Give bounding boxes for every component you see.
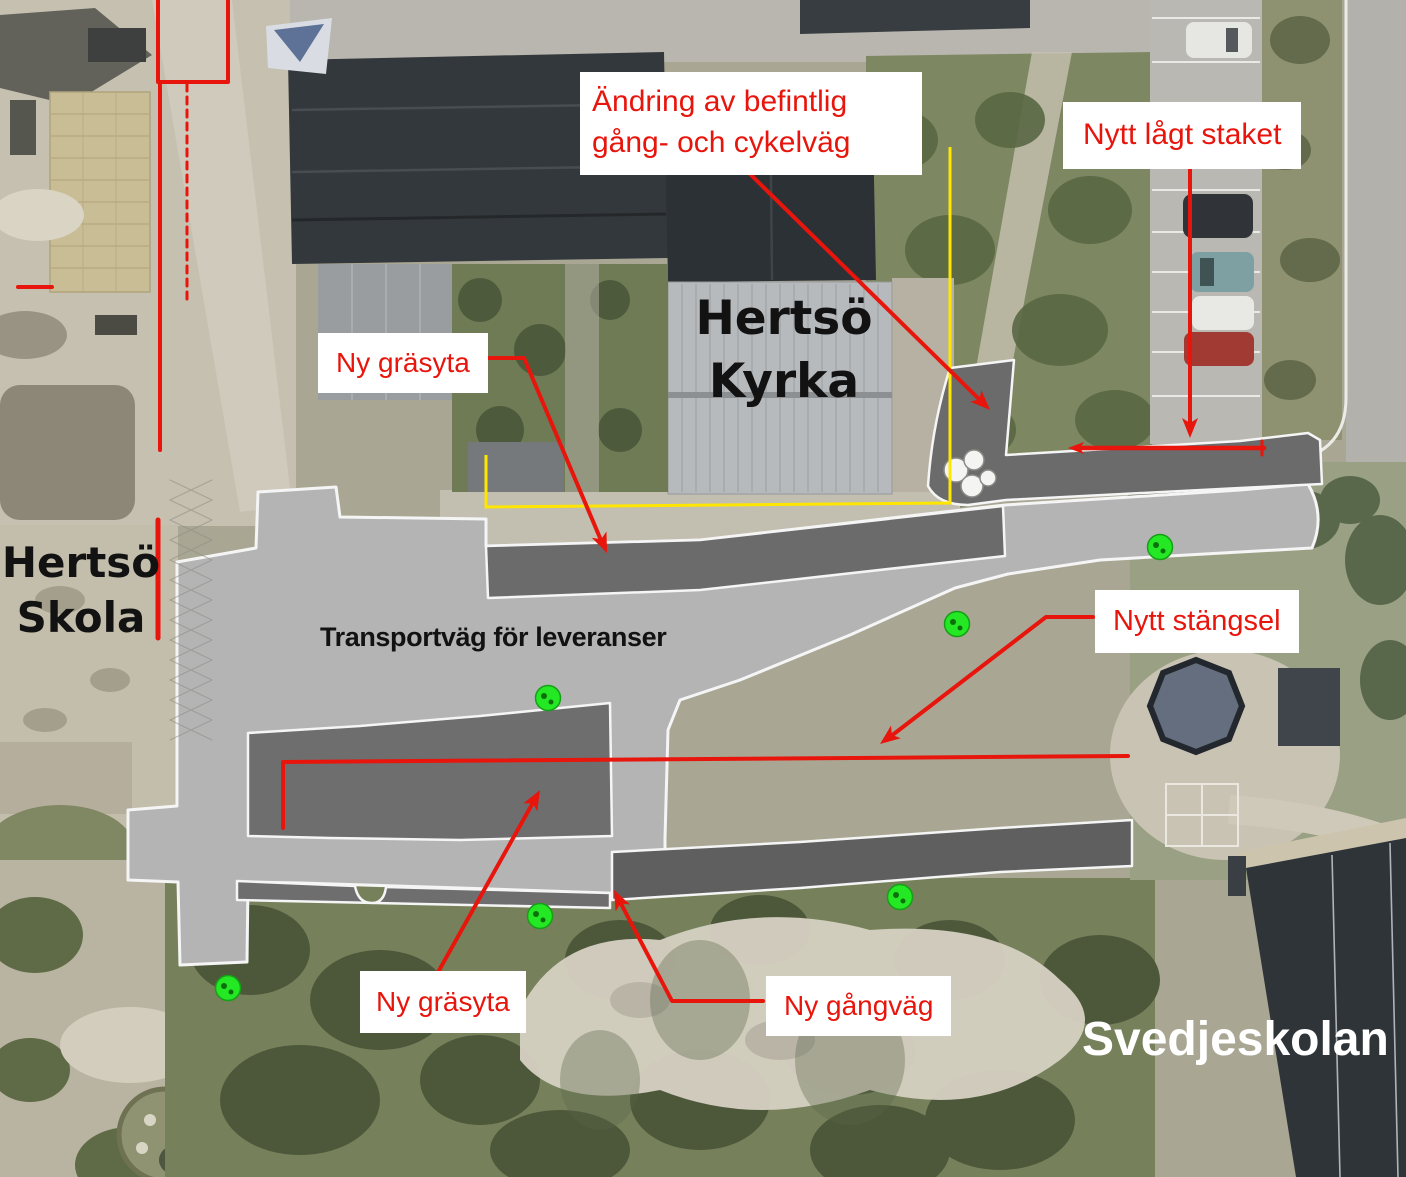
annotation-nytt-lagt-staket: Nytt lågt staket <box>1063 102 1301 169</box>
aerial-photo-canvas <box>0 0 1406 1177</box>
annotation-andring-cykelvag: Ändring av befintlig gång- och cykelväg <box>580 72 922 175</box>
excavator <box>95 315 137 335</box>
place-label-transportvag: Transportväg för leveranser <box>320 622 666 653</box>
top-building-roof <box>800 0 1030 34</box>
construction-building-roof <box>50 92 150 292</box>
car-teal <box>1190 252 1254 292</box>
annotation-ny-gangvag: Ny gångväg <box>766 976 951 1036</box>
octagon-pool <box>1150 660 1242 752</box>
place-label-hertso-skola: Hertsö Skola <box>0 536 166 645</box>
annotation-ny-grasyta-lower: Ny gräsyta <box>360 971 526 1033</box>
annotation-nytt-stangsel: Nytt stängsel <box>1095 590 1299 653</box>
car-red <box>1184 332 1254 366</box>
site-plan-map: Ändring av befintlig gång- och cykelväg … <box>0 0 1406 1177</box>
car-white-1 <box>1186 22 1252 58</box>
car-white-2 <box>1192 296 1254 330</box>
place-label-svedjeskolan: Svedjeskolan <box>1082 1012 1389 1067</box>
annotation-ny-grasyta-upper: Ny gräsyta <box>318 333 488 393</box>
playground-shed <box>1278 668 1340 746</box>
car-dark <box>1183 194 1253 238</box>
place-label-hertso-kyrka: Hertsö Kyrka <box>660 288 908 414</box>
